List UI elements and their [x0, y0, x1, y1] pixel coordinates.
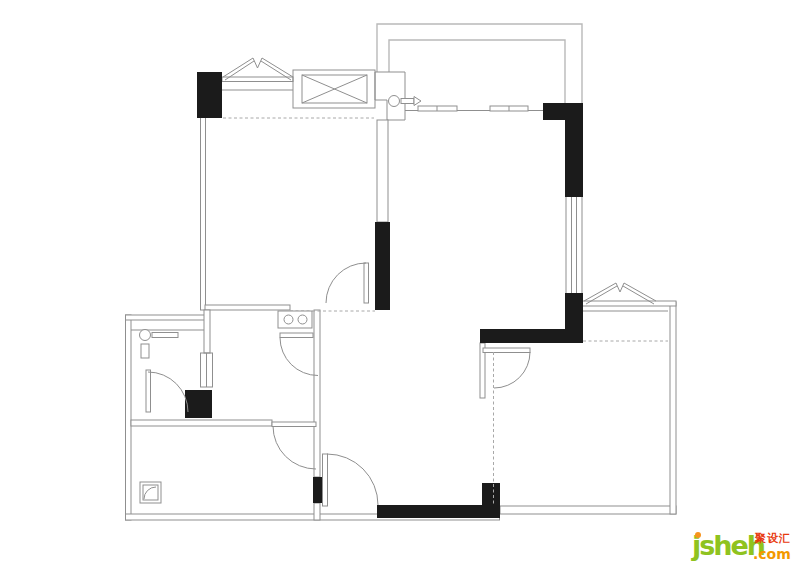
door-swing-arc [327, 454, 378, 505]
kitchen-door [280, 333, 318, 376]
bedroom1-door [326, 263, 369, 303]
bay1-notch [253, 58, 262, 68]
balcony-outer-wall [377, 24, 582, 103]
door-leaf [323, 454, 328, 506]
door-swing-arc [148, 372, 188, 412]
drain-curve [144, 487, 156, 499]
door-swing-arc [280, 338, 318, 376]
windows [200, 197, 582, 387]
wall-bottom-entry [377, 483, 500, 518]
faucet-spout [152, 333, 178, 338]
balcony-sliding-door [405, 106, 543, 111]
door-swing-arc [326, 263, 366, 303]
bedroom1-top-wall [222, 77, 293, 82]
logo-tld-text: .com [753, 546, 791, 562]
bedroom1-bottom-wall [205, 305, 290, 310]
left-exterior-wall [126, 315, 132, 520]
bedroom2-top-wall [582, 301, 676, 306]
logo-cjk-text: 聚设汇 [755, 531, 791, 546]
kitchen-right-wall [314, 310, 320, 477]
bottom-exterior-wall-right [500, 506, 676, 514]
valve-tip [414, 97, 421, 106]
door-swing-arc [494, 352, 530, 388]
logo-j-dot [695, 532, 701, 538]
door-leaf [272, 422, 316, 427]
faucet-pipe [141, 344, 149, 358]
bathroom-kitchen-wall [204, 310, 210, 353]
duct-box-cross [302, 75, 367, 103]
door-leaf [364, 263, 369, 303]
wall-junction-box [375, 72, 405, 120]
central-wall-upper [377, 120, 388, 222]
floor-plan-page: jsheh 聚设汇 .com [0, 0, 800, 565]
bathroom-top-wall [126, 315, 210, 320]
column-bathroom-corner [185, 390, 212, 418]
living-room-right-window [566, 197, 582, 293]
balcony-outline [377, 24, 582, 103]
column-top-left [197, 72, 222, 118]
partition-walls [126, 70, 677, 520]
door-swing-arc [273, 426, 316, 469]
floor-drain [140, 482, 161, 503]
stove [278, 311, 312, 328]
entry-door [323, 454, 379, 506]
wall-top-right-corner [543, 103, 583, 197]
room-bottomleft-top-wall [131, 420, 272, 426]
door-leaf [146, 370, 151, 412]
balcony-inner-wall [389, 40, 565, 103]
bathroom-window [200, 353, 213, 387]
bathroom-faucet [140, 330, 179, 359]
watermark-logo: jsheh 聚设汇 .com [692, 529, 800, 565]
bay-window-bedroom2 [583, 283, 668, 311]
door-leaf [483, 348, 530, 353]
wall-living-bedroom2 [480, 329, 580, 343]
room-bottomleft-door [272, 422, 316, 469]
valve-stem [401, 99, 414, 104]
wall-central-lower [375, 222, 390, 310]
bay2-notch [616, 283, 624, 292]
floor-plan-drawing [0, 0, 800, 565]
bedroom2-right-wall [670, 302, 676, 514]
bay-window-top-left [222, 58, 293, 90]
entry-door-jamb [313, 477, 322, 503]
faucet-knob [140, 330, 151, 341]
entry-wall-stub [314, 503, 320, 520]
valve-knob [389, 96, 400, 107]
bathroom-door [146, 370, 188, 412]
door-leaf [280, 333, 313, 338]
bedroom2-door [483, 348, 530, 388]
